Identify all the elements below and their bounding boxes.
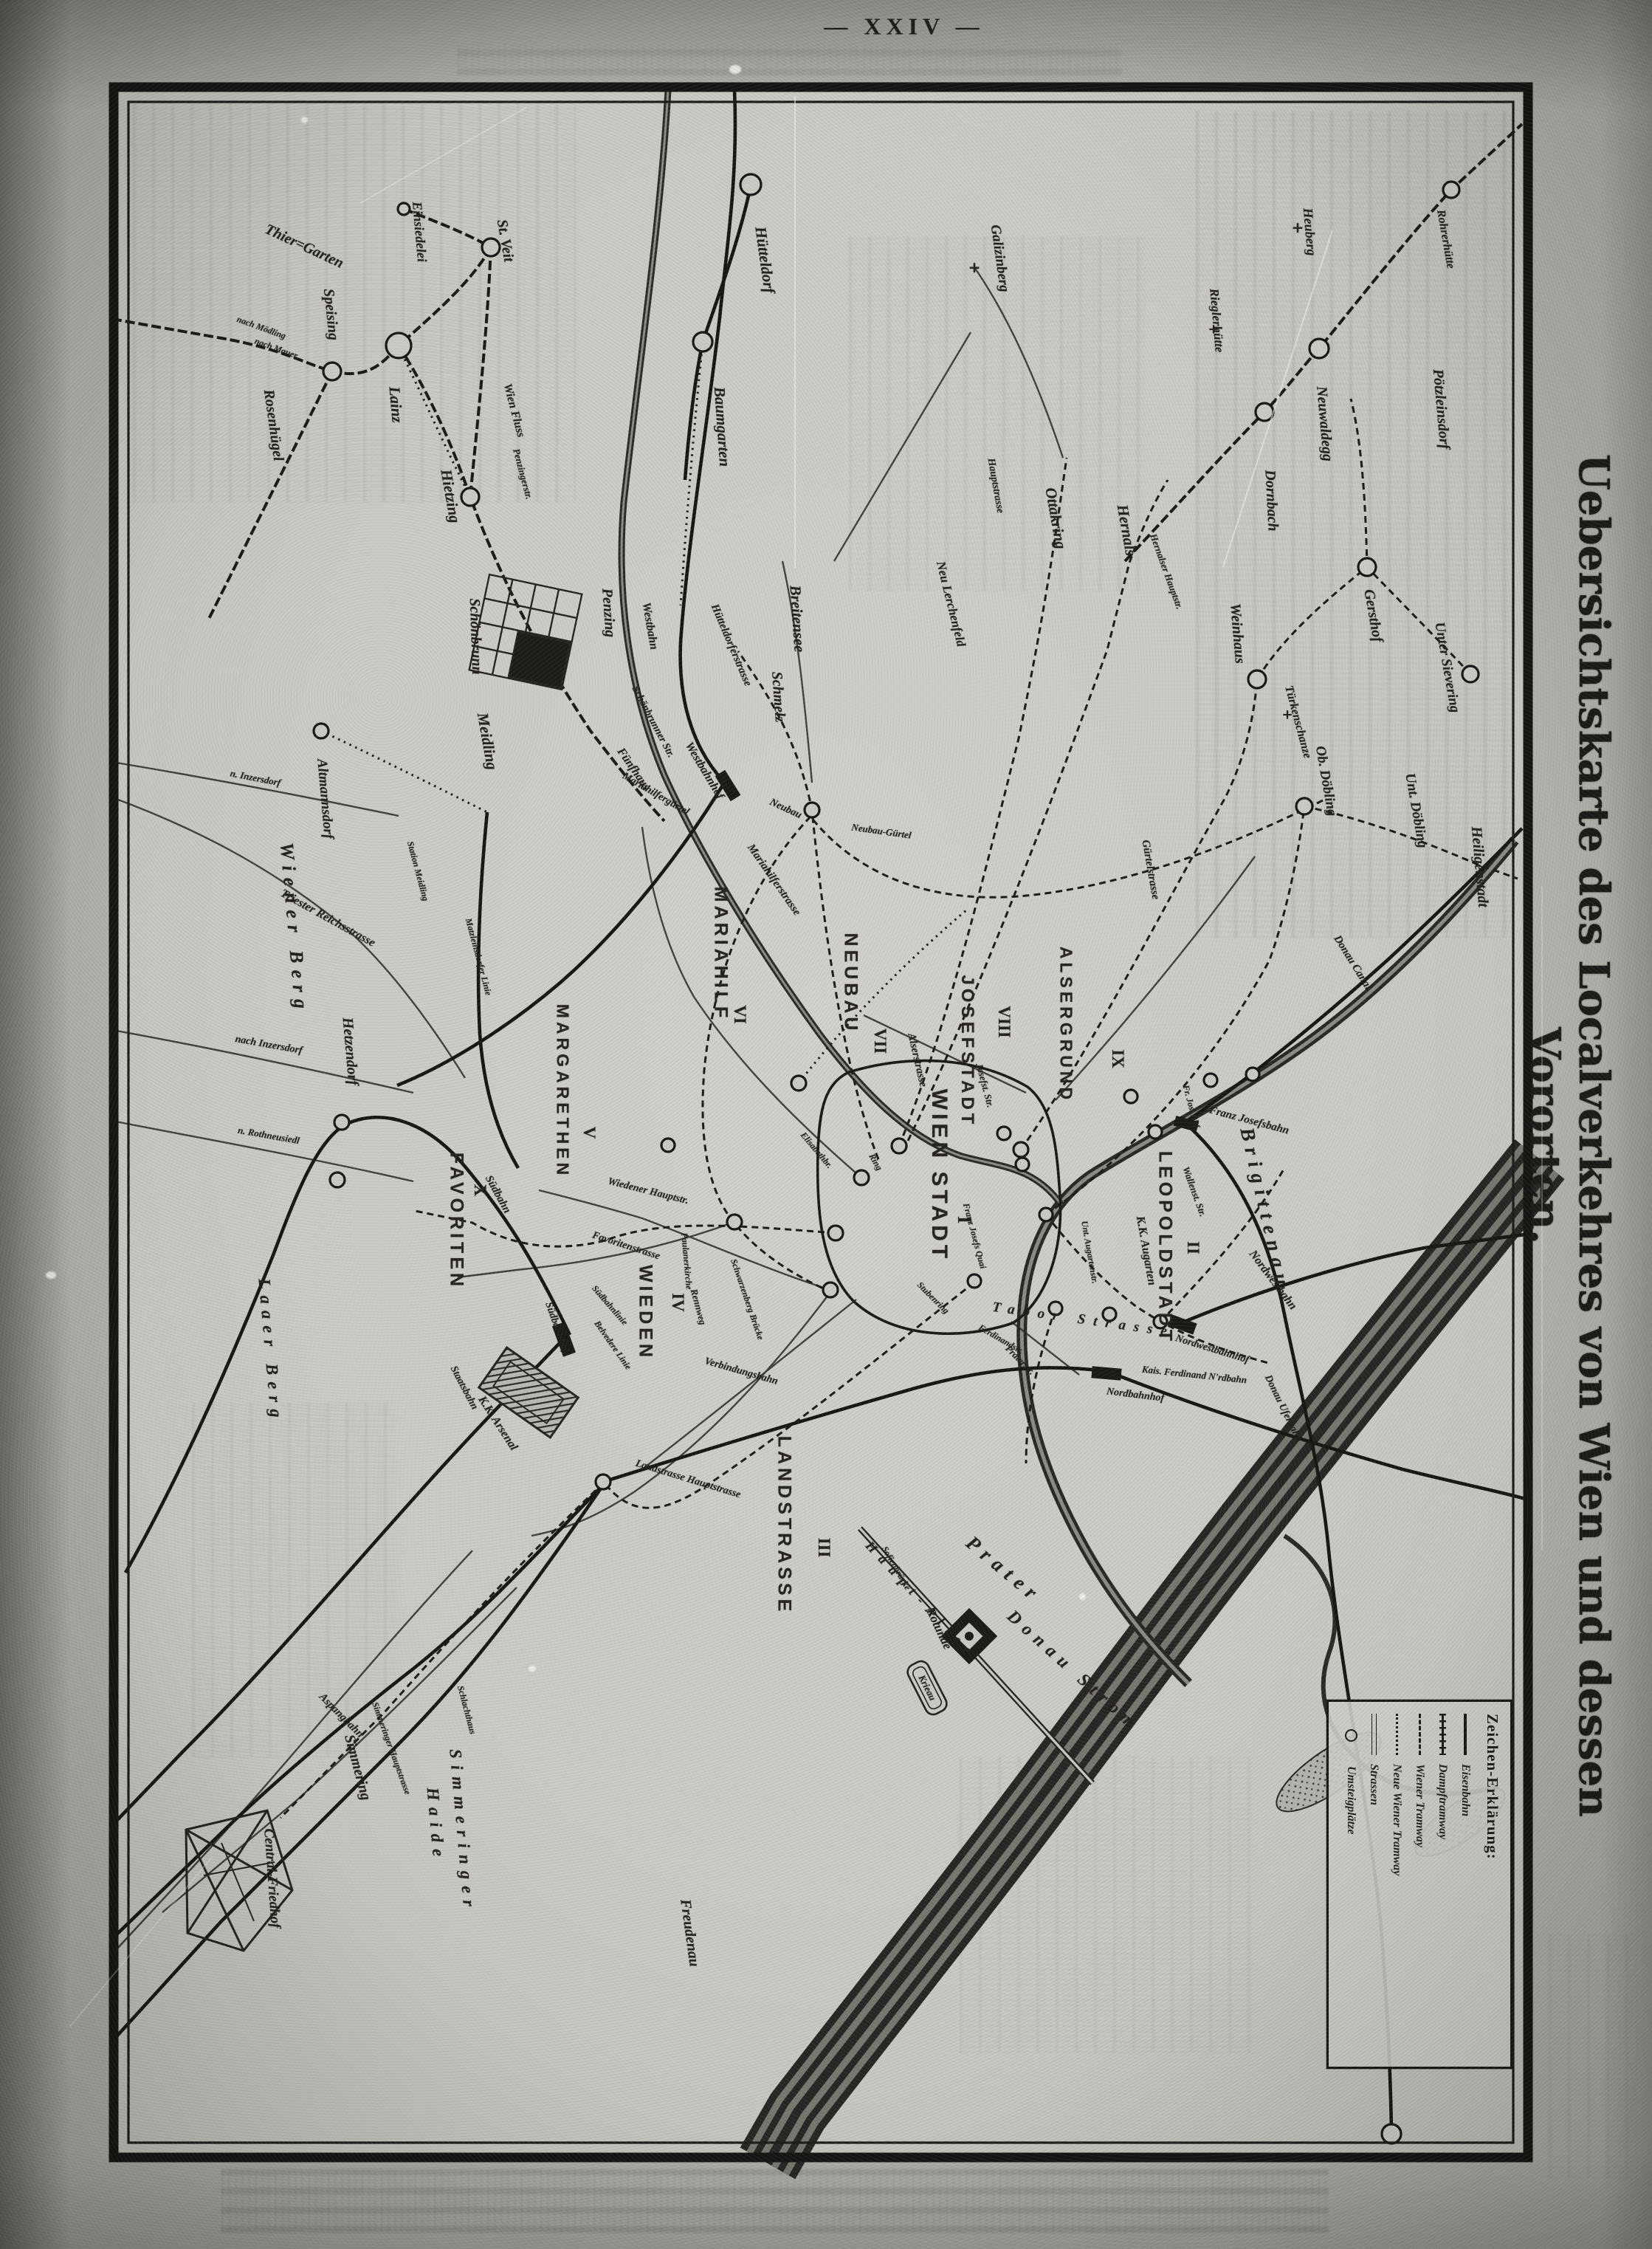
legend-item: Wiener Tramway <box>1408 1714 1431 2055</box>
legend-item-label: Strassen <box>1368 1764 1381 1805</box>
legend-item: Neue Wiener Tramway <box>1386 1714 1408 2055</box>
dashed-symbol-icon <box>1419 1714 1421 1755</box>
dotted-symbol-icon <box>1396 1714 1398 1755</box>
solid-symbol-icon <box>1465 1714 1467 1755</box>
legend-title: Zeichen-Erklärung: <box>1483 1714 1501 2055</box>
double-symbol-icon <box>1371 1714 1377 1755</box>
circle-symbol-icon <box>1345 1729 1357 1742</box>
legend-item: Strassen <box>1363 1714 1386 2055</box>
legend-item: Umsteigplätze <box>1340 1714 1363 2055</box>
map-title-text: Uebersichtskarte des Localverkehres von … <box>1521 454 1618 1817</box>
legend-item-label: Wiener Tramway <box>1414 1764 1427 1847</box>
legend-item-label: Eisenbahn <box>1459 1764 1473 1816</box>
page-number: — XXIV — <box>824 13 984 41</box>
legend-item-label: Neue Wiener Tramway <box>1391 1764 1404 1875</box>
map-legend: Zeichen-Erklärung: EisenbahnDampftramway… <box>1326 1700 1512 2069</box>
legend-item-label: Dampftramway <box>1436 1764 1450 1839</box>
ghost-text <box>1549 1934 1637 2178</box>
map-title: Uebersichtskarte des Localverkehres von … <box>1550 346 1618 1926</box>
paper-speck <box>46 1271 56 1279</box>
paper-speck <box>729 65 741 74</box>
map-panel <box>114 87 1528 2157</box>
scanned-page: — XXIV — <box>0 0 1652 2249</box>
ticked-symbol-icon <box>1439 1714 1446 1755</box>
legend-item: Eisenbahn <box>1454 1714 1477 2055</box>
legend-item-label: Umsteigplätze <box>1345 1766 1358 1834</box>
ghost-text <box>458 44 1122 75</box>
ghost-text <box>221 2169 1329 2233</box>
legend-items: EisenbahnDampftramwayWiener TramwayNeue … <box>1340 1714 1477 2055</box>
legend-content: Zeichen-Erklärung: EisenbahnDampftramway… <box>1329 1702 1510 2067</box>
legend-item: Dampftramway <box>1431 1714 1454 2055</box>
